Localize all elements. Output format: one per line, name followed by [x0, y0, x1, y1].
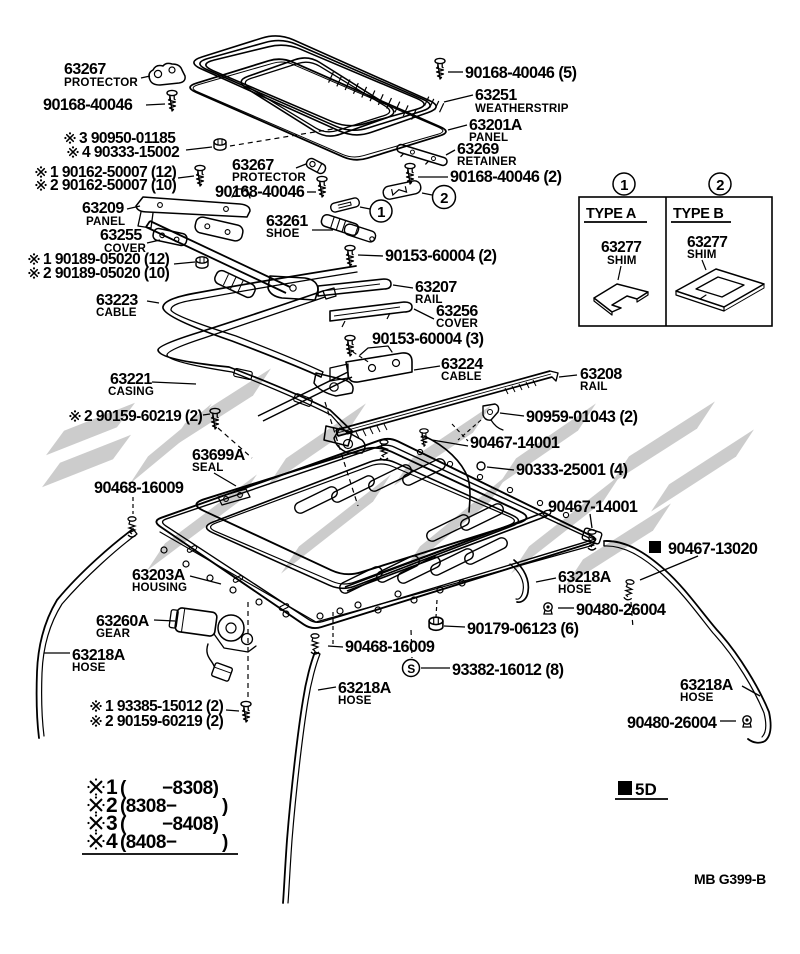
svg-text:2 90159-60219 (2): 2 90159-60219 (2) [84, 408, 203, 425]
svg-text:(8408−: (8408− [120, 832, 177, 853]
svg-text:TYPE A: TYPE A [586, 206, 637, 222]
svg-text:90168-40046: 90168-40046 [43, 96, 133, 114]
svg-text:HOSE: HOSE [680, 691, 714, 704]
svg-text:RETAINER: RETAINER [457, 155, 517, 168]
svg-text:CASING: CASING [108, 385, 154, 398]
svg-text:90959-01043 (2): 90959-01043 (2) [526, 408, 638, 426]
svg-text:90467-13020: 90467-13020 [668, 540, 758, 558]
svg-text:WEATHERSTRIP: WEATHERSTRIP [475, 102, 569, 115]
svg-text:90168-40046 (2): 90168-40046 (2) [450, 168, 562, 186]
svg-text:TYPE B: TYPE B [673, 206, 724, 222]
svg-text:90168-40046: 90168-40046 [215, 183, 305, 201]
svg-text:2: 2 [440, 190, 448, 207]
svg-text:2 90159-60219 (2): 2 90159-60219 (2) [105, 713, 224, 730]
svg-text:90480-26004: 90480-26004 [627, 714, 717, 732]
svg-text:): ) [222, 832, 228, 853]
svg-text:HOSE: HOSE [72, 661, 106, 674]
svg-text:90480-26004: 90480-26004 [576, 601, 666, 619]
svg-text:1: 1 [620, 177, 628, 194]
svg-text:S: S [407, 662, 415, 676]
svg-text:RAIL: RAIL [580, 380, 608, 393]
svg-text:90153-60004 (3): 90153-60004 (3) [372, 330, 484, 348]
svg-text:5D: 5D [635, 780, 657, 799]
svg-text:SEAL: SEAL [192, 461, 224, 474]
svg-text:SHIM: SHIM [687, 248, 717, 261]
svg-text:HOUSING: HOUSING [132, 581, 187, 594]
svg-text:4 90333-15002: 4 90333-15002 [82, 144, 179, 161]
svg-text:90153-60004 (2): 90153-60004 (2) [385, 247, 497, 265]
svg-text:90468-16009: 90468-16009 [94, 479, 184, 497]
svg-text:90467-14001: 90467-14001 [470, 434, 560, 452]
svg-text:HOSE: HOSE [338, 694, 372, 707]
svg-text:90468-16009: 90468-16009 [345, 638, 435, 656]
svg-text:SHOE: SHOE [266, 227, 300, 240]
svg-text:COVER: COVER [436, 317, 478, 330]
svg-text:90333-25001 (4): 90333-25001 (4) [516, 461, 628, 479]
svg-text:90467-14001: 90467-14001 [548, 498, 638, 516]
svg-text:CABLE: CABLE [96, 306, 137, 319]
svg-text:4: 4 [106, 830, 118, 853]
svg-text:): ) [222, 796, 228, 817]
svg-text:SHIM: SHIM [607, 254, 637, 267]
svg-text:PROTECTOR: PROTECTOR [64, 76, 138, 89]
svg-text:2 90189-05020 (10): 2 90189-05020 (10) [43, 265, 170, 282]
svg-text:1: 1 [377, 204, 385, 221]
svg-text:90179-06123 (6): 90179-06123 (6) [467, 620, 579, 638]
svg-text:2: 2 [716, 177, 724, 194]
svg-text:2 90162-50007 (10): 2 90162-50007 (10) [50, 177, 177, 194]
svg-text:GEAR: GEAR [96, 627, 131, 640]
svg-text:90168-40046 (5): 90168-40046 (5) [465, 64, 577, 82]
svg-text:HOSE: HOSE [558, 583, 592, 596]
svg-text:CABLE: CABLE [441, 370, 482, 383]
svg-text:93382-16012 (8): 93382-16012 (8) [452, 661, 564, 679]
svg-text:MB G399-B: MB G399-B [694, 871, 766, 887]
